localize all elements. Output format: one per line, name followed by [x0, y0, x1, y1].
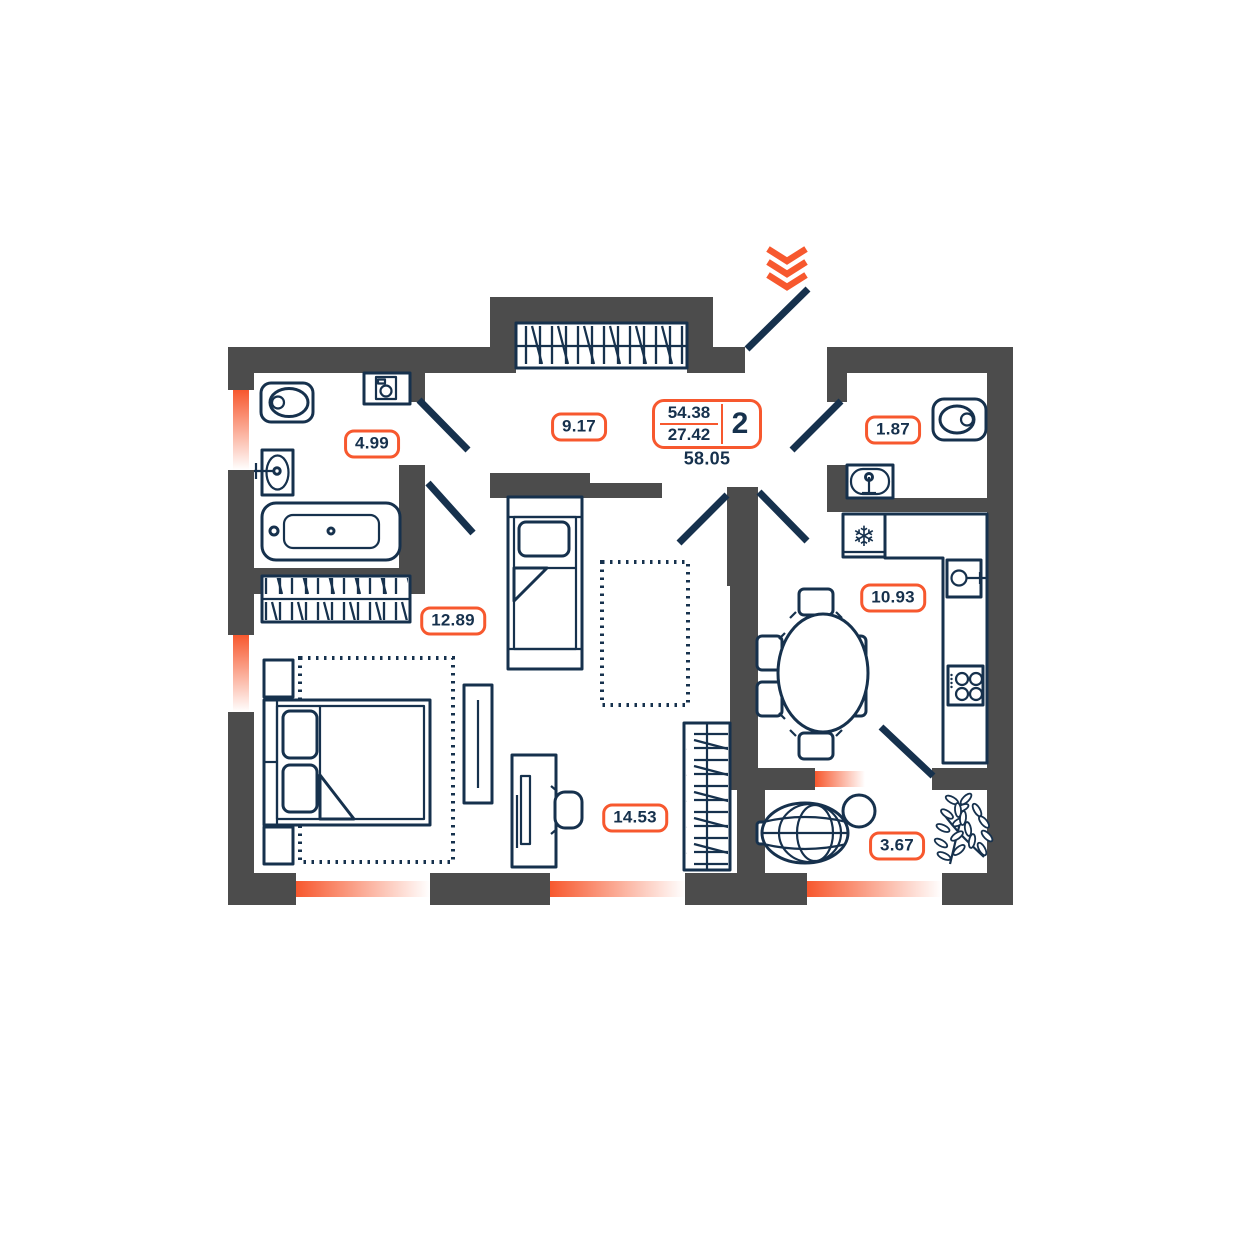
- badge-divider: [721, 404, 723, 444]
- washing-machine-icon: [364, 373, 410, 404]
- wall-segment: [987, 347, 1013, 905]
- wall-segment: [228, 470, 254, 635]
- window-balcony-bottom: [807, 881, 942, 897]
- wc-fixtures: [847, 399, 986, 498]
- wc-door-leaf: [792, 401, 841, 450]
- dining-table-icon: [778, 614, 868, 732]
- window-balcony-top: [815, 771, 865, 787]
- side-table-icon: [843, 795, 875, 827]
- wall-segment: [228, 347, 254, 390]
- rooms-count: 2: [725, 404, 755, 444]
- bathroom-door-leaf: [419, 400, 468, 450]
- window-bathroom: [233, 390, 249, 470]
- wall-segment: [713, 347, 745, 373]
- wall-segment: [932, 768, 987, 790]
- living-area-value: 27.42: [668, 426, 711, 444]
- wall-segment: [228, 347, 490, 373]
- area-label-hallway: 9.17: [551, 413, 607, 442]
- wc-toilet-icon: [933, 399, 986, 440]
- tall-wardrobe-icon: [684, 723, 730, 870]
- full-area-value: 58.05: [684, 449, 731, 470]
- bedroom-wardrobe-icon: [262, 576, 410, 622]
- nightstand-icon: [264, 660, 293, 697]
- kitchen-sink-icon: [947, 560, 987, 597]
- wall-segment: [827, 498, 987, 512]
- window-bedroom-bottom: [296, 881, 430, 897]
- window-bedroom-left: [233, 635, 249, 712]
- entrance-chevron-icon: [768, 249, 806, 287]
- wall-segment: [942, 873, 1013, 905]
- bathtub-icon: [262, 503, 400, 560]
- apartment-stat-badge: 54.38 27.42 2: [652, 399, 762, 449]
- living-door-leaf: [679, 495, 727, 543]
- wall-segment: [730, 586, 758, 790]
- bathroom-fixtures: [254, 373, 410, 560]
- entrance-door-leaf: [747, 289, 808, 349]
- wall-segment: [737, 790, 765, 905]
- sink-icon: [254, 450, 293, 495]
- area-fraction: 54.38 27.42: [659, 404, 719, 444]
- wall-segment: [727, 487, 758, 586]
- toilet-icon: [261, 383, 313, 422]
- floor-plan: ❄: [0, 0, 1241, 1241]
- wall-segment: [827, 373, 847, 402]
- desk-chair-icon: [555, 792, 582, 828]
- hallway-wardrobe-icon: [516, 323, 687, 368]
- area-label-bedroom: 12.89: [420, 607, 486, 636]
- nightstand-icon: [264, 827, 293, 864]
- dresser-icon: [464, 685, 492, 803]
- stove-icon: [948, 666, 983, 705]
- wall-segment: [516, 297, 687, 323]
- desk-icon: [512, 755, 582, 867]
- wall-segment: [490, 473, 590, 498]
- plant-icon: [933, 792, 994, 864]
- wall-segment: [590, 483, 662, 498]
- floor-plan-canvas: ❄: [0, 0, 1241, 1241]
- wall-segment: [228, 873, 296, 905]
- wall-segment: [430, 873, 550, 905]
- wall-segment: [687, 297, 713, 373]
- kitchen-counter: [885, 514, 987, 763]
- area-label-bathroom: 4.99: [344, 430, 400, 459]
- double-bed-icon: [264, 700, 430, 825]
- balcony-door-leaf: [881, 727, 933, 776]
- kitchen-fixtures: ❄: [757, 514, 987, 763]
- wall-segment: [490, 297, 516, 373]
- area-label-wc: 1.87: [865, 416, 921, 445]
- single-bed-icon: [508, 497, 582, 669]
- wc-sink-icon: [847, 465, 893, 498]
- rug-icon: [602, 562, 688, 705]
- area-label-kitchen: 10.93: [860, 584, 926, 613]
- cocoon-chair-icon: [757, 803, 848, 863]
- wall-segment: [827, 347, 1013, 373]
- dining-set-icon: [757, 589, 868, 759]
- window-living-bottom: [550, 881, 685, 897]
- fridge-icon: ❄: [843, 514, 885, 557]
- snowflake-icon: ❄: [852, 520, 875, 553]
- area-label-living: 14.53: [602, 804, 668, 833]
- bedroom-door-leaf: [428, 483, 473, 533]
- total-area-value: 54.38: [668, 404, 711, 422]
- wall-segment: [745, 768, 815, 790]
- kitchen-door-leaf: [759, 492, 807, 541]
- area-label-balcony: 3.67: [869, 832, 925, 861]
